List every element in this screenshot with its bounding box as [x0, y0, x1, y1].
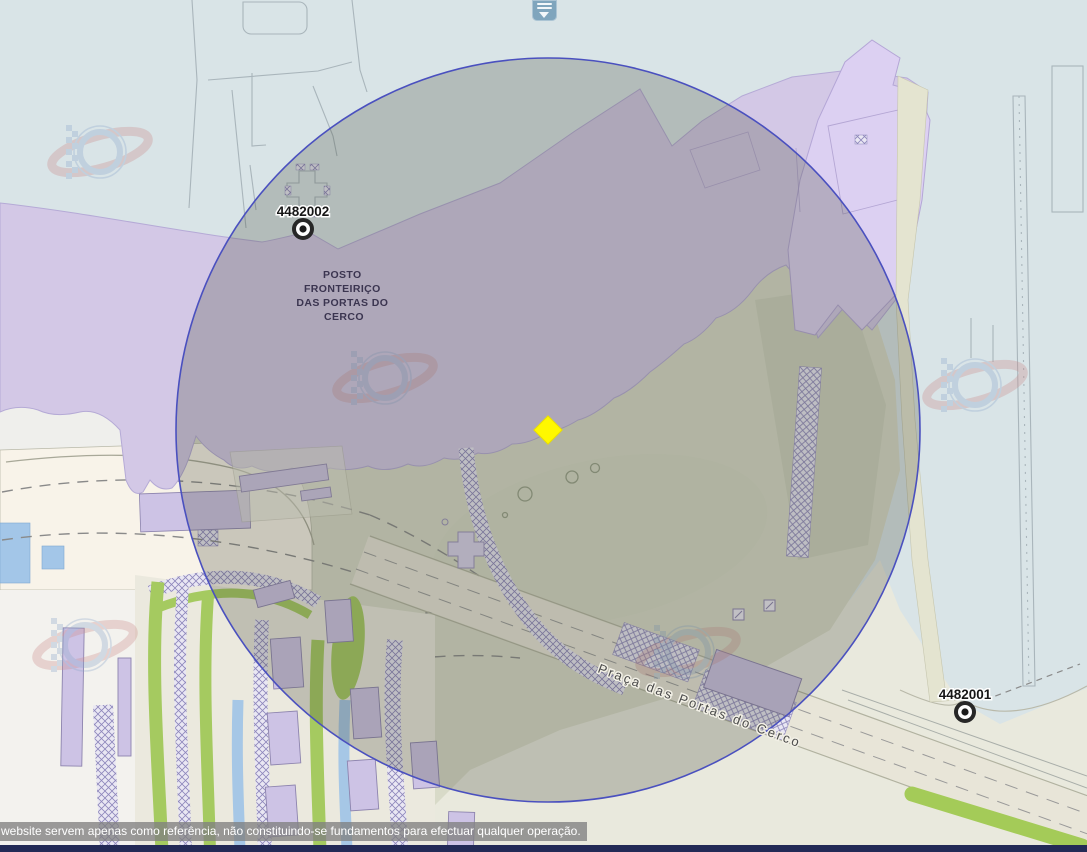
chevron-down-icon [539, 12, 549, 18]
drawer-collapse-button[interactable] [532, 0, 557, 21]
station-marker-label: 4482001 [939, 687, 992, 702]
drawer-collapse-icon [537, 7, 552, 9]
map-viewport[interactable]: POSTO FRONTEIRIÇO DAS PORTAS DO CERCO Pr… [0, 0, 1087, 852]
map-canvas: POSTO FRONTEIRIÇO DAS PORTAS DO CERCO Pr… [0, 0, 1087, 852]
disclaimer-text: website servem apenas como referência, n… [1, 824, 581, 838]
bottom-bar [0, 845, 1087, 852]
station-marker-label: 4482002 [277, 204, 330, 219]
bullseye-icon [956, 703, 974, 721]
bullseye-icon [294, 220, 312, 238]
disclaimer-bar: website servem apenas como referência, n… [0, 822, 587, 841]
drawer-collapse-icon [537, 3, 552, 5]
pool [0, 523, 30, 583]
pool-small [42, 546, 64, 569]
